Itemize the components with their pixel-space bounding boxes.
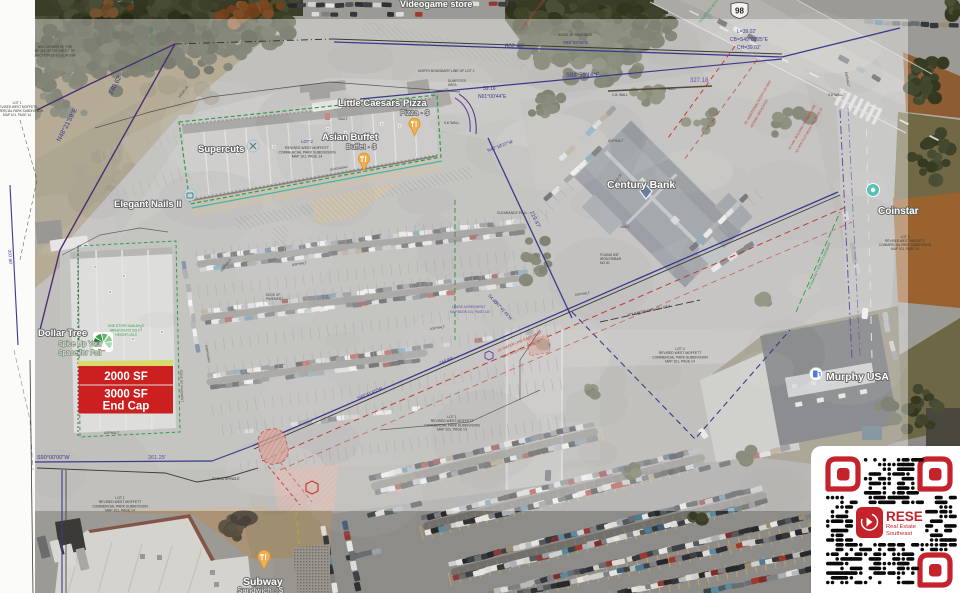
svg-text:LOT 2: LOT 2	[301, 139, 313, 144]
svg-text:Dollar Tree: Dollar Tree	[38, 328, 87, 339]
svg-text:Videogame store: Videogame store	[400, 0, 472, 9]
svg-text:Murphy USA: Murphy USA	[826, 371, 889, 383]
svg-text:MAP 101, PAGE 14: MAP 101, PAGE 14	[891, 247, 919, 251]
svg-text:LEASE AGREEMENT: LEASE AGREEMENT	[452, 305, 485, 309]
svg-text:3000 SF: 3000 SF	[104, 389, 147, 401]
svg-text:Space for Fall: Space for Fall	[58, 350, 102, 357]
svg-text:C.B. WALL: C.B. WALL	[660, 87, 676, 91]
svg-text:PAVEMENT: PAVEMENT	[266, 297, 283, 301]
svg-text:602.46': 602.46'	[505, 44, 525, 50]
svg-text:NORTH BOUNDARY LINE OF LOT 2: NORTH BOUNDARY LINE OF LOT 2	[418, 69, 475, 73]
svg-text:2000 SF: 2000 SF	[104, 371, 147, 383]
svg-text:ONE STORY BUILDING: ONE STORY BUILDING	[108, 324, 145, 328]
svg-text:S90°00'00"W: S90°00'00"W	[37, 455, 70, 461]
svg-text:MAP BOOK 101, PAGE 140: MAP BOOK 101, PAGE 140	[450, 310, 490, 314]
svg-text:AREA: AREA	[448, 83, 458, 87]
svg-text:Coinstar: Coinstar	[878, 206, 919, 217]
svg-text:Sandwich · $: Sandwich · $	[237, 586, 284, 593]
svg-text:C.B. WALL: C.B. WALL	[612, 93, 628, 97]
svg-text:Century Bank: Century Bank	[607, 179, 675, 191]
svg-text:Buffet · $: Buffet · $	[346, 142, 377, 151]
svg-text:CH=39.02': CH=39.02'	[737, 45, 761, 51]
svg-text:Spice Up Your: Spice Up Your	[58, 341, 103, 348]
svg-text:BASIS OF BEARINGS: BASIS OF BEARINGS	[558, 33, 593, 37]
svg-text:261.25': 261.25'	[148, 455, 166, 461]
svg-text:CB=S49°05'25"E: CB=S49°05'25"E	[730, 37, 769, 43]
svg-text:MAP 101, PAGE 14: MAP 101, PAGE 14	[105, 509, 135, 513]
svg-text:SECTION 25 T-1-S, R-1-W: SECTION 25 T-1-S, R-1-W	[35, 53, 76, 57]
svg-text:MAP 101, PAGE 14: MAP 101, PAGE 14	[292, 155, 323, 159]
svg-text:VAULT: VAULT	[338, 117, 348, 121]
svg-text:RESE: RESE	[886, 509, 923, 524]
svg-text:0.6' WALL: 0.6' WALL	[444, 121, 460, 125]
svg-text:N01°00'44"E: N01°00'44"E	[478, 94, 507, 100]
svg-text:VAULT: VAULT	[620, 225, 630, 229]
svg-text:MAP 101, PAGE 14: MAP 101, PAGE 14	[437, 428, 467, 432]
svg-text:S88°59'16"E: S88°59'16"E	[566, 73, 600, 79]
svg-text:Supercuts: Supercuts	[198, 144, 244, 155]
svg-text:L=39.02': L=39.02'	[737, 29, 756, 35]
svg-text:HEIGHT=20.0: HEIGHT=20.0	[115, 333, 137, 337]
svg-text:ASPHALT: ASPHALT	[608, 139, 623, 143]
svg-text:End Cap: End Cap	[103, 401, 150, 413]
svg-text:MAP 101, PAGE 14: MAP 101, PAGE 14	[665, 360, 695, 364]
svg-text:MAP 101, PAGE 14: MAP 101, PAGE 14	[3, 113, 31, 117]
svg-text:S88°59'16"E: S88°59'16"E	[563, 40, 588, 45]
svg-text:ASPHALT: ASPHALT	[104, 431, 119, 435]
svg-text:Southeast: Southeast	[886, 531, 912, 537]
svg-text:Real Estate: Real Estate	[886, 524, 916, 530]
svg-text:Elegant Nails II: Elegant Nails II	[114, 199, 182, 210]
svg-text:327.18: 327.18	[690, 78, 709, 84]
svg-text:CLEARANCE POLL: CLEARANCE POLL	[497, 211, 527, 215]
svg-text:AREA=20,472 SQ FT: AREA=20,472 SQ FT	[110, 329, 143, 333]
svg-text:98: 98	[735, 7, 744, 16]
svg-text:39.16': 39.16'	[483, 86, 497, 92]
svg-text:0.8' WALL: 0.8' WALL	[828, 93, 844, 97]
svg-text:FOUND SPINDLE: FOUND SPINDLE	[212, 477, 240, 481]
svg-text:Pizza · $: Pizza · $	[400, 108, 430, 117]
svg-text:NO ID: NO ID	[600, 261, 610, 265]
